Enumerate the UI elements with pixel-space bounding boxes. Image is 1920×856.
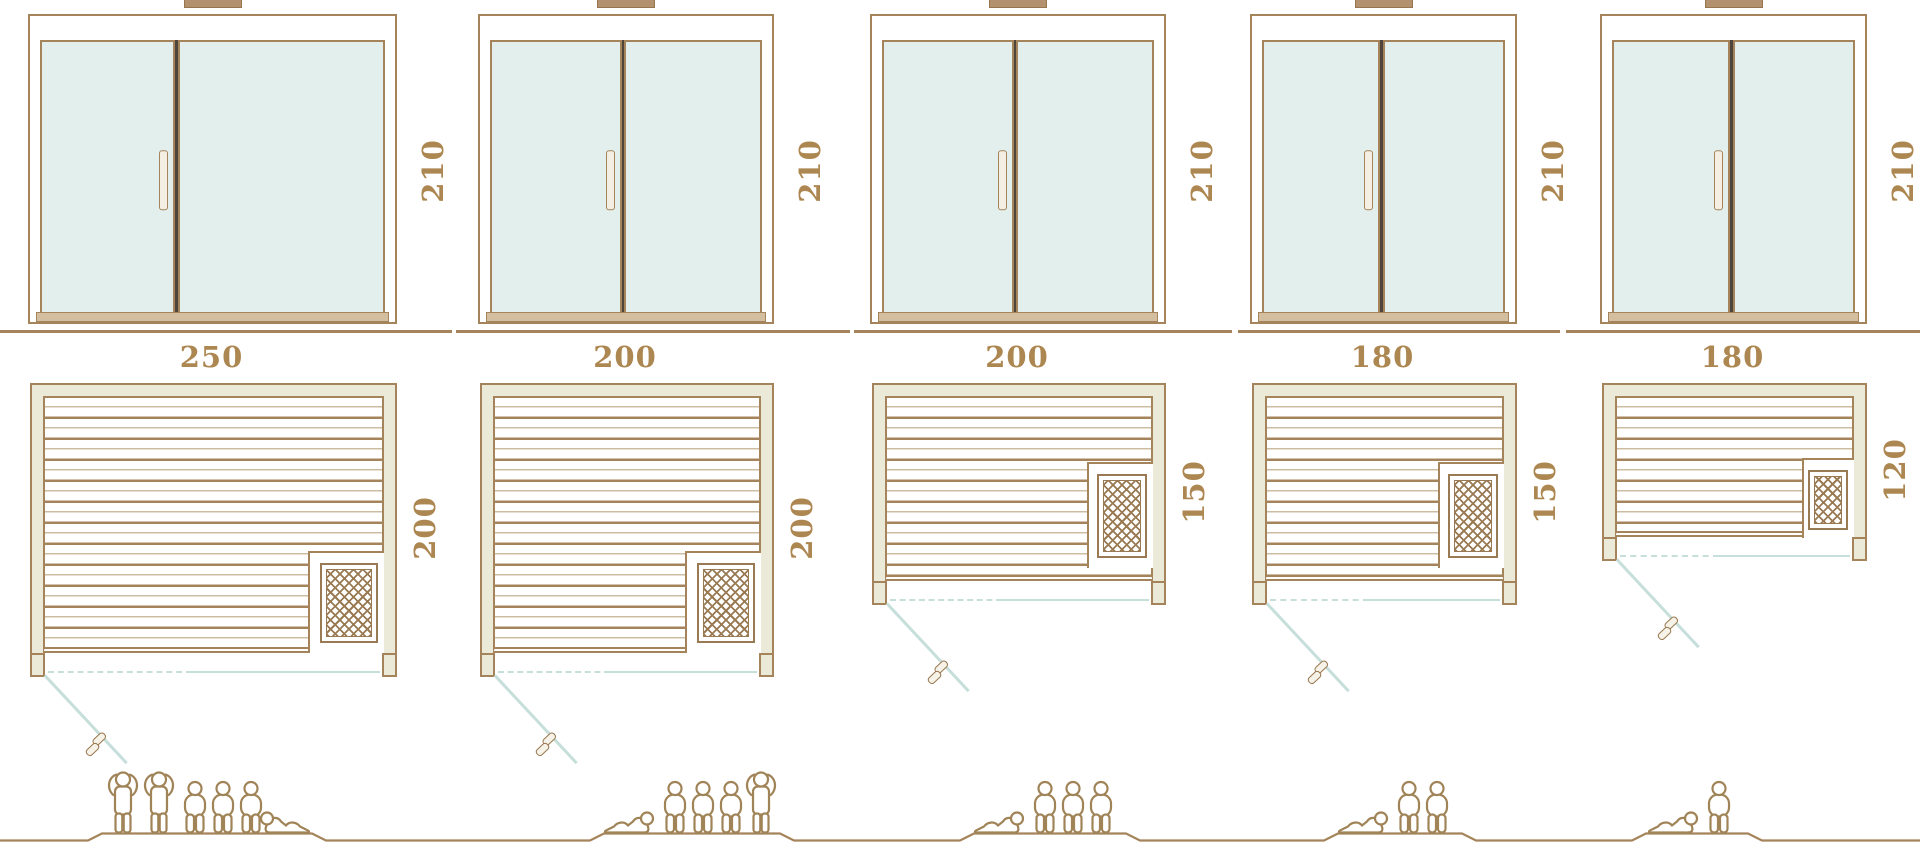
door-open-dashed-line [1270,599,1369,601]
person-lying-icon [1649,813,1697,833]
wall-post-right [1151,581,1166,605]
glass-area [40,40,385,318]
capacity-group-2 [605,773,775,833]
front-wall-line [1002,599,1149,601]
door-open-dashed-line [1620,555,1719,557]
glass-panel-left [1612,40,1730,318]
door-height-label: 210 [1888,126,1918,216]
plan-depth-label: 200 [787,483,817,573]
heater-icon [697,563,755,643]
door-elevation-2 [478,0,774,332]
wall-post-left [1602,537,1617,561]
capacity-ground-line [0,834,1920,841]
door-frame [1600,14,1867,324]
floor-plan-4 [1252,383,1517,603]
capacity-group-1 [109,773,309,833]
ground-line [1566,330,1920,333]
person-lying-icon [975,813,1023,833]
door-elevation-1 [28,0,397,332]
door-threshold [36,312,389,322]
ground-line [1238,330,1560,333]
plan-interior-slats [1615,396,1854,537]
door-frame [478,14,774,324]
plan-interior-slats [43,396,384,653]
glass-panel-left [40,40,175,318]
door-open-dashed-line [890,599,1002,601]
front-wall-line [1719,555,1850,557]
door-handle-icon [606,150,615,210]
door-height-label: 210 [795,126,825,216]
door-open-dashed-line [498,671,610,673]
ground-line [0,330,452,333]
plan-width-label: 180 [1252,342,1513,372]
person-lying-icon [261,813,309,833]
glass-panel-right [1016,40,1154,318]
person-sitting-icon [1399,782,1419,833]
ground-line [456,330,850,333]
glass-panel-left [490,40,622,318]
sauna-dimensions-diagram: 210 250 200 [0,0,1920,856]
chimney-cap-icon [1355,0,1413,8]
person-sitting-icon [1709,782,1729,833]
glass-panel-right [624,40,762,318]
heater-grid-icon [1814,476,1842,524]
plan-width-label: 200 [480,342,770,372]
door-elevation-4 [1250,0,1517,332]
door-handle-icon [998,150,1007,210]
heater-recess [1802,458,1854,538]
chimney-cap-icon [184,0,242,8]
heater-grid-icon [326,569,372,637]
capacity-row [0,760,1920,856]
heater-grid-icon [703,569,749,637]
wall-post-left [480,653,495,677]
heater-icon [320,563,378,643]
heater-icon [1808,470,1848,530]
wall-post-left [1252,581,1267,605]
front-wall-line [192,671,380,673]
chimney-cap-icon [597,0,655,8]
door-handle-icon [159,150,168,210]
glass-area [882,40,1154,318]
person-sitting-icon [693,782,713,833]
plan-interior-slats [493,396,761,653]
person-sitting-icon [665,782,685,833]
floor-plan-3 [872,383,1166,603]
heater-icon [1097,474,1147,558]
wall-post-left [30,653,45,677]
door-frame [28,14,397,324]
capacity-group-4 [1339,782,1447,833]
door-frame [1250,14,1517,324]
door-handle-icon [1714,150,1723,210]
glass-panel-right [1733,40,1855,318]
plan-width-label: 250 [30,342,393,372]
heater-recess [308,551,384,653]
chimney-cap-icon [989,0,1047,8]
glass-panel-left [882,40,1014,318]
person-sitting-icon [1035,782,1055,833]
plan-depth-label: 150 [1530,447,1560,537]
capacity-group-5 [1649,782,1729,833]
glass-area [1612,40,1855,318]
door-height-label: 210 [418,126,448,216]
plan-interior-slats [885,396,1153,581]
person-sitting-icon [1427,782,1447,833]
door-elevation-3 [870,0,1166,332]
glass-area [490,40,762,318]
person-sitting-icon [213,782,233,833]
front-wall-line [1369,599,1500,601]
capacity-group-3 [975,782,1111,833]
door-handle-icon [1364,150,1373,210]
glass-panel-right [178,40,385,318]
glass-panel-right [1383,40,1505,318]
plan-width-label: 200 [872,342,1162,372]
door-open-dashed-line [48,671,192,673]
person-sitting-icon [185,782,205,833]
plan-interior-slats [1265,396,1504,581]
wall-post-right [1852,537,1867,561]
heater-recess [685,551,761,653]
plan-width-label: 180 [1602,342,1863,372]
heater-icon [1448,474,1498,558]
plan-depth-label: 150 [1179,447,1209,537]
wall-post-left [872,581,887,605]
floor-plan-1 [30,383,397,675]
wall-post-right [759,653,774,677]
door-frame [870,14,1166,324]
floor-plan-2 [480,383,774,675]
door-height-label: 210 [1538,126,1568,216]
person-sitting-icon [241,782,261,833]
door-threshold [486,312,766,322]
door-threshold [1258,312,1509,322]
person-standing-icon [145,773,173,833]
door-elevation-5 [1600,0,1867,332]
glass-panel-left [1262,40,1380,318]
person-standing-icon [747,773,775,833]
plan-depth-label: 200 [410,483,440,573]
heater-recess [1438,462,1504,568]
chimney-cap-icon [1705,0,1763,8]
glass-area [1262,40,1505,318]
person-standing-icon [109,773,137,833]
heater-grid-icon [1454,480,1492,552]
door-threshold [878,312,1158,322]
person-sitting-icon [1091,782,1111,833]
heater-recess [1087,462,1153,568]
person-sitting-icon [721,782,741,833]
wall-post-right [1502,581,1517,605]
person-sitting-icon [1063,782,1083,833]
door-height-label: 210 [1187,126,1217,216]
front-wall-line [610,671,757,673]
floor-plan-5 [1602,383,1867,559]
wall-post-right [382,653,397,677]
person-lying-icon [1339,813,1387,833]
door-threshold [1608,312,1859,322]
heater-grid-icon [1103,480,1141,552]
person-lying-icon [605,813,653,833]
plan-depth-label: 120 [1880,425,1910,515]
ground-line [854,330,1232,333]
